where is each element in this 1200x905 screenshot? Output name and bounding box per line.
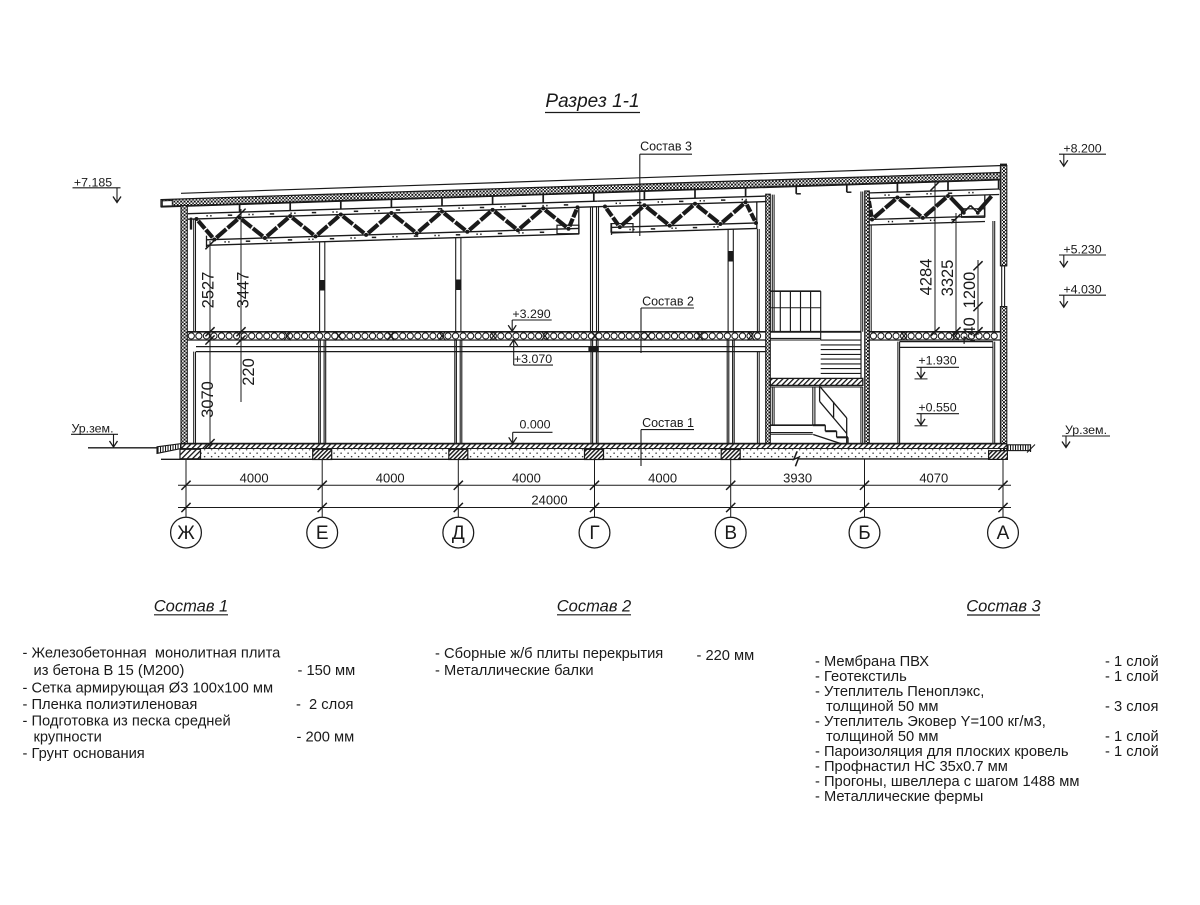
- svg-text:4070: 4070: [919, 470, 948, 485]
- svg-text:толщиной 50 мм: толщиной 50 мм: [826, 699, 938, 715]
- svg-text:- Утеплитель Пеноплэкс,: - Утеплитель Пеноплэкс,: [815, 684, 984, 700]
- svg-text:- Геотекстиль: - Геотекстиль: [815, 669, 907, 685]
- svg-text:- 1 слой: - 1 слой: [1105, 669, 1159, 685]
- svg-text:+4.030: +4.030: [1063, 283, 1101, 297]
- svg-text:3447: 3447: [234, 272, 252, 309]
- svg-text:Состав 3: Состав 3: [640, 140, 692, 154]
- svg-text:- Мембрана ПВХ: - Мембрана ПВХ: [815, 654, 929, 670]
- svg-text:Состав 3: Состав 3: [966, 598, 1041, 616]
- svg-text:А: А: [997, 523, 1010, 544]
- svg-text:220: 220: [240, 358, 258, 386]
- svg-text:- Прогоны, швеллера с шагом 14: - Прогоны, швеллера с шагом 1488 мм: [815, 774, 1079, 790]
- svg-text:Состав 2: Состав 2: [557, 598, 631, 616]
- svg-text:- Сборные ж/б плиты перекрытия: - Сборные ж/б плиты перекрытия: [435, 646, 663, 662]
- svg-text:- Подготовка из песка средней: - Подготовка из песка средней: [23, 714, 231, 730]
- svg-text:Состав 1: Состав 1: [642, 416, 694, 430]
- svg-text:толщиной 50 мм: толщиной 50 мм: [826, 729, 938, 745]
- svg-text:- 3 слоя: - 3 слоя: [1105, 699, 1158, 715]
- svg-text:+1.930: +1.930: [918, 354, 956, 368]
- svg-text:из бетона В 15 (М200): из бетона В 15 (М200): [34, 663, 185, 679]
- svg-text:3930: 3930: [783, 470, 812, 485]
- svg-text:- 150 мм: - 150 мм: [298, 663, 356, 679]
- svg-text:Ур.зем.: Ур.зем.: [1065, 423, 1107, 437]
- svg-text:Б: Б: [858, 523, 870, 544]
- svg-text:- 220 мм: - 220 мм: [697, 648, 755, 664]
- svg-text:+5.230: +5.230: [1063, 242, 1101, 256]
- svg-text:- Железобетонная монолитная п: - Железобетонная монолитная плита: [23, 646, 282, 662]
- svg-text:- 1 слой: - 1 слой: [1105, 729, 1159, 745]
- svg-text:крупности: крупности: [34, 730, 102, 746]
- svg-text:1200: 1200: [961, 272, 979, 309]
- svg-text:- Металлические фермы: - Металлические фермы: [815, 789, 983, 805]
- svg-text:В: В: [724, 523, 737, 544]
- svg-text:Состав 2: Состав 2: [642, 295, 694, 309]
- svg-text:4000: 4000: [648, 470, 677, 485]
- svg-text:740: 740: [961, 317, 979, 345]
- svg-text:3325: 3325: [939, 260, 957, 297]
- svg-text:24000: 24000: [531, 492, 567, 507]
- svg-text:- 1 слой: - 1 слой: [1105, 654, 1159, 670]
- svg-text:+7.185: +7.185: [74, 175, 112, 189]
- svg-text:Состав 1: Состав 1: [154, 598, 228, 616]
- svg-text:Е: Е: [316, 523, 329, 544]
- svg-text:- Пленка полиэтиленовая: - Пленка полиэтиленовая: [23, 697, 198, 713]
- svg-text:Д: Д: [452, 523, 465, 544]
- svg-text:Г: Г: [589, 523, 599, 544]
- svg-text:+3.290: +3.290: [512, 307, 550, 321]
- svg-text:- Металлические балки: - Металлические балки: [435, 663, 594, 679]
- svg-text:4000: 4000: [512, 470, 541, 485]
- svg-text:3070: 3070: [199, 381, 217, 418]
- svg-text:- Утеплитель Эковер Y=100 кг/м: - Утеплитель Эковер Y=100 кг/м3,: [815, 714, 1046, 730]
- svg-text:2527: 2527: [200, 272, 218, 309]
- svg-text:0.000: 0.000: [519, 418, 550, 432]
- svg-text:+0.550: +0.550: [918, 400, 956, 414]
- svg-text:Ур.зем.: Ур.зем.: [71, 422, 113, 436]
- svg-text:Ж: Ж: [177, 523, 195, 544]
- svg-text:- 1 слой: - 1 слой: [1105, 744, 1159, 760]
- svg-text:- 2 слоя: - 2 слоя: [296, 697, 354, 713]
- svg-text:+3.070: +3.070: [514, 352, 552, 366]
- svg-text:- Профнастил НС 35х0.7 мм: - Профнастил НС 35х0.7 мм: [815, 759, 1008, 775]
- svg-text:- Грунт основания: - Грунт основания: [23, 746, 145, 762]
- svg-text:4284: 4284: [918, 259, 936, 296]
- svg-text:- Пароизоляция для плоских кро: - Пароизоляция для плоских кровель: [815, 744, 1069, 760]
- svg-text:4000: 4000: [240, 470, 269, 485]
- svg-text:+8.200: +8.200: [1063, 142, 1101, 156]
- svg-text:4000: 4000: [376, 470, 405, 485]
- svg-text:Разрез 1-1: Разрез 1-1: [545, 91, 639, 112]
- svg-text:- 200 мм: - 200 мм: [297, 730, 355, 746]
- svg-text:- Сетка армирующая Ø3 100х100: - Сетка армирующая Ø3 100х100 мм: [23, 681, 274, 697]
